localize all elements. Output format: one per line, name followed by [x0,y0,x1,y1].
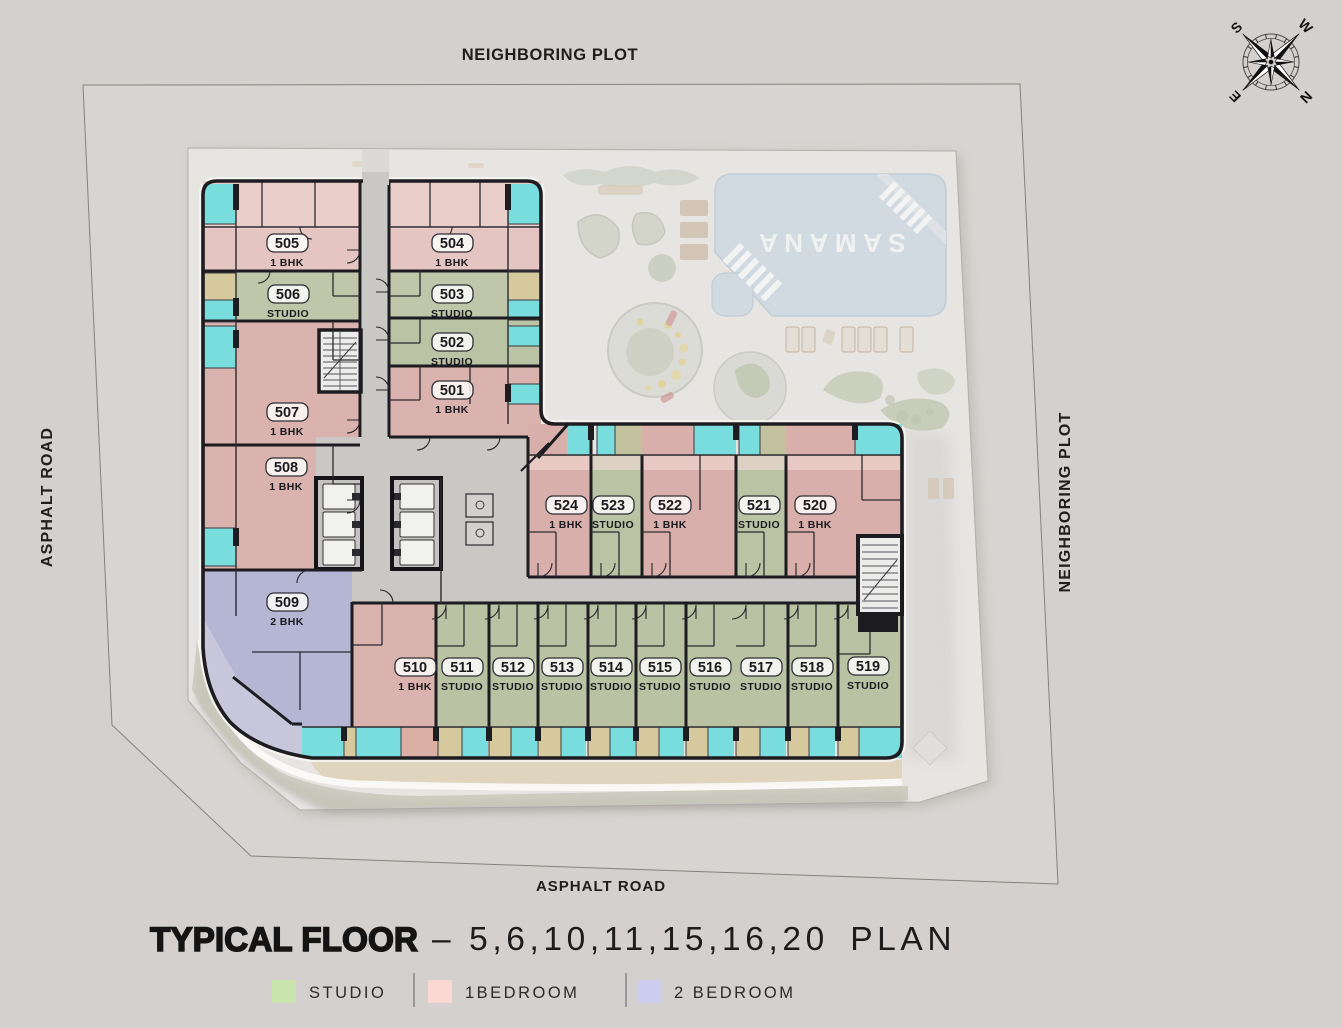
svg-text:1 BHK: 1 BHK [398,681,432,693]
svg-text:NEIGHBORING PLOT: NEIGHBORING PLOT [1057,412,1074,593]
svg-text:1 BHK: 1 BHK [270,257,304,269]
svg-text:508: 508 [274,460,298,476]
svg-text:519: 519 [856,659,880,675]
svg-text:STUDIO: STUDIO [590,681,632,693]
svg-text:506: 506 [276,287,300,303]
svg-text:STUDIO: STUDIO [267,308,309,320]
svg-text:STUDIO: STUDIO [592,519,634,531]
svg-text:2 BEDROOM: 2 BEDROOM [674,984,796,1002]
svg-text:523: 523 [601,498,625,514]
svg-text:– 5,6,10,11,15,16,20 PLAN: – 5,6,10,11,15,16,20 PLAN [432,921,956,958]
svg-text:1 BHK: 1 BHK [435,257,469,269]
svg-text:521: 521 [747,498,771,514]
svg-text:2 BHK: 2 BHK [270,616,304,628]
svg-text:1 BHK: 1 BHK [270,426,304,438]
svg-text:505: 505 [275,236,299,252]
svg-text:1 BHK: 1 BHK [269,481,303,493]
svg-text:STUDIO: STUDIO [689,681,731,693]
svg-text:524: 524 [554,498,578,514]
svg-text:STUDIO: STUDIO [847,680,889,692]
svg-text:502: 502 [440,335,464,351]
svg-text:STUDIO: STUDIO [309,984,386,1002]
svg-text:518: 518 [800,660,824,676]
svg-text:503: 503 [440,287,464,303]
svg-text:1 BHK: 1 BHK [798,519,832,531]
svg-text:509: 509 [275,595,299,611]
svg-text:STUDIO: STUDIO [639,681,681,693]
svg-text:STUDIO: STUDIO [441,681,483,693]
svg-text:NEIGHBORING PLOT: NEIGHBORING PLOT [462,46,638,64]
svg-text:STUDIO: STUDIO [431,356,473,368]
svg-text:ASPHALT ROAD: ASPHALT ROAD [39,427,56,567]
svg-text:TYPICAL FLOOR: TYPICAL FLOOR [150,921,418,959]
svg-text:522: 522 [658,498,682,514]
svg-text:STUDIO: STUDIO [431,308,473,320]
svg-text:1 BHK: 1 BHK [549,519,583,531]
svg-text:507: 507 [275,405,299,421]
svg-text:1BEDROOM: 1BEDROOM [465,984,579,1002]
svg-text:STUDIO: STUDIO [740,681,782,693]
svg-text:511: 511 [450,660,473,676]
svg-text:504: 504 [440,236,464,252]
svg-text:510: 510 [403,660,427,676]
svg-text:517: 517 [749,660,773,676]
svg-text:STUDIO: STUDIO [541,681,583,693]
svg-text:514: 514 [599,660,623,676]
svg-text:1 BHK: 1 BHK [653,519,687,531]
svg-text:STUDIO: STUDIO [791,681,833,693]
svg-text:STUDIO: STUDIO [492,681,534,693]
svg-text:516: 516 [698,660,722,676]
svg-text:1 BHK: 1 BHK [435,404,469,416]
svg-text:STUDIO: STUDIO [738,519,780,531]
svg-text:512: 512 [501,660,525,676]
svg-text:SAMANA: SAMANA [752,228,905,258]
svg-text:513: 513 [550,660,574,676]
svg-text:515: 515 [648,660,672,676]
svg-text:501: 501 [440,383,464,399]
svg-text:520: 520 [803,498,827,514]
svg-text:ASPHALT ROAD: ASPHALT ROAD [536,878,666,895]
